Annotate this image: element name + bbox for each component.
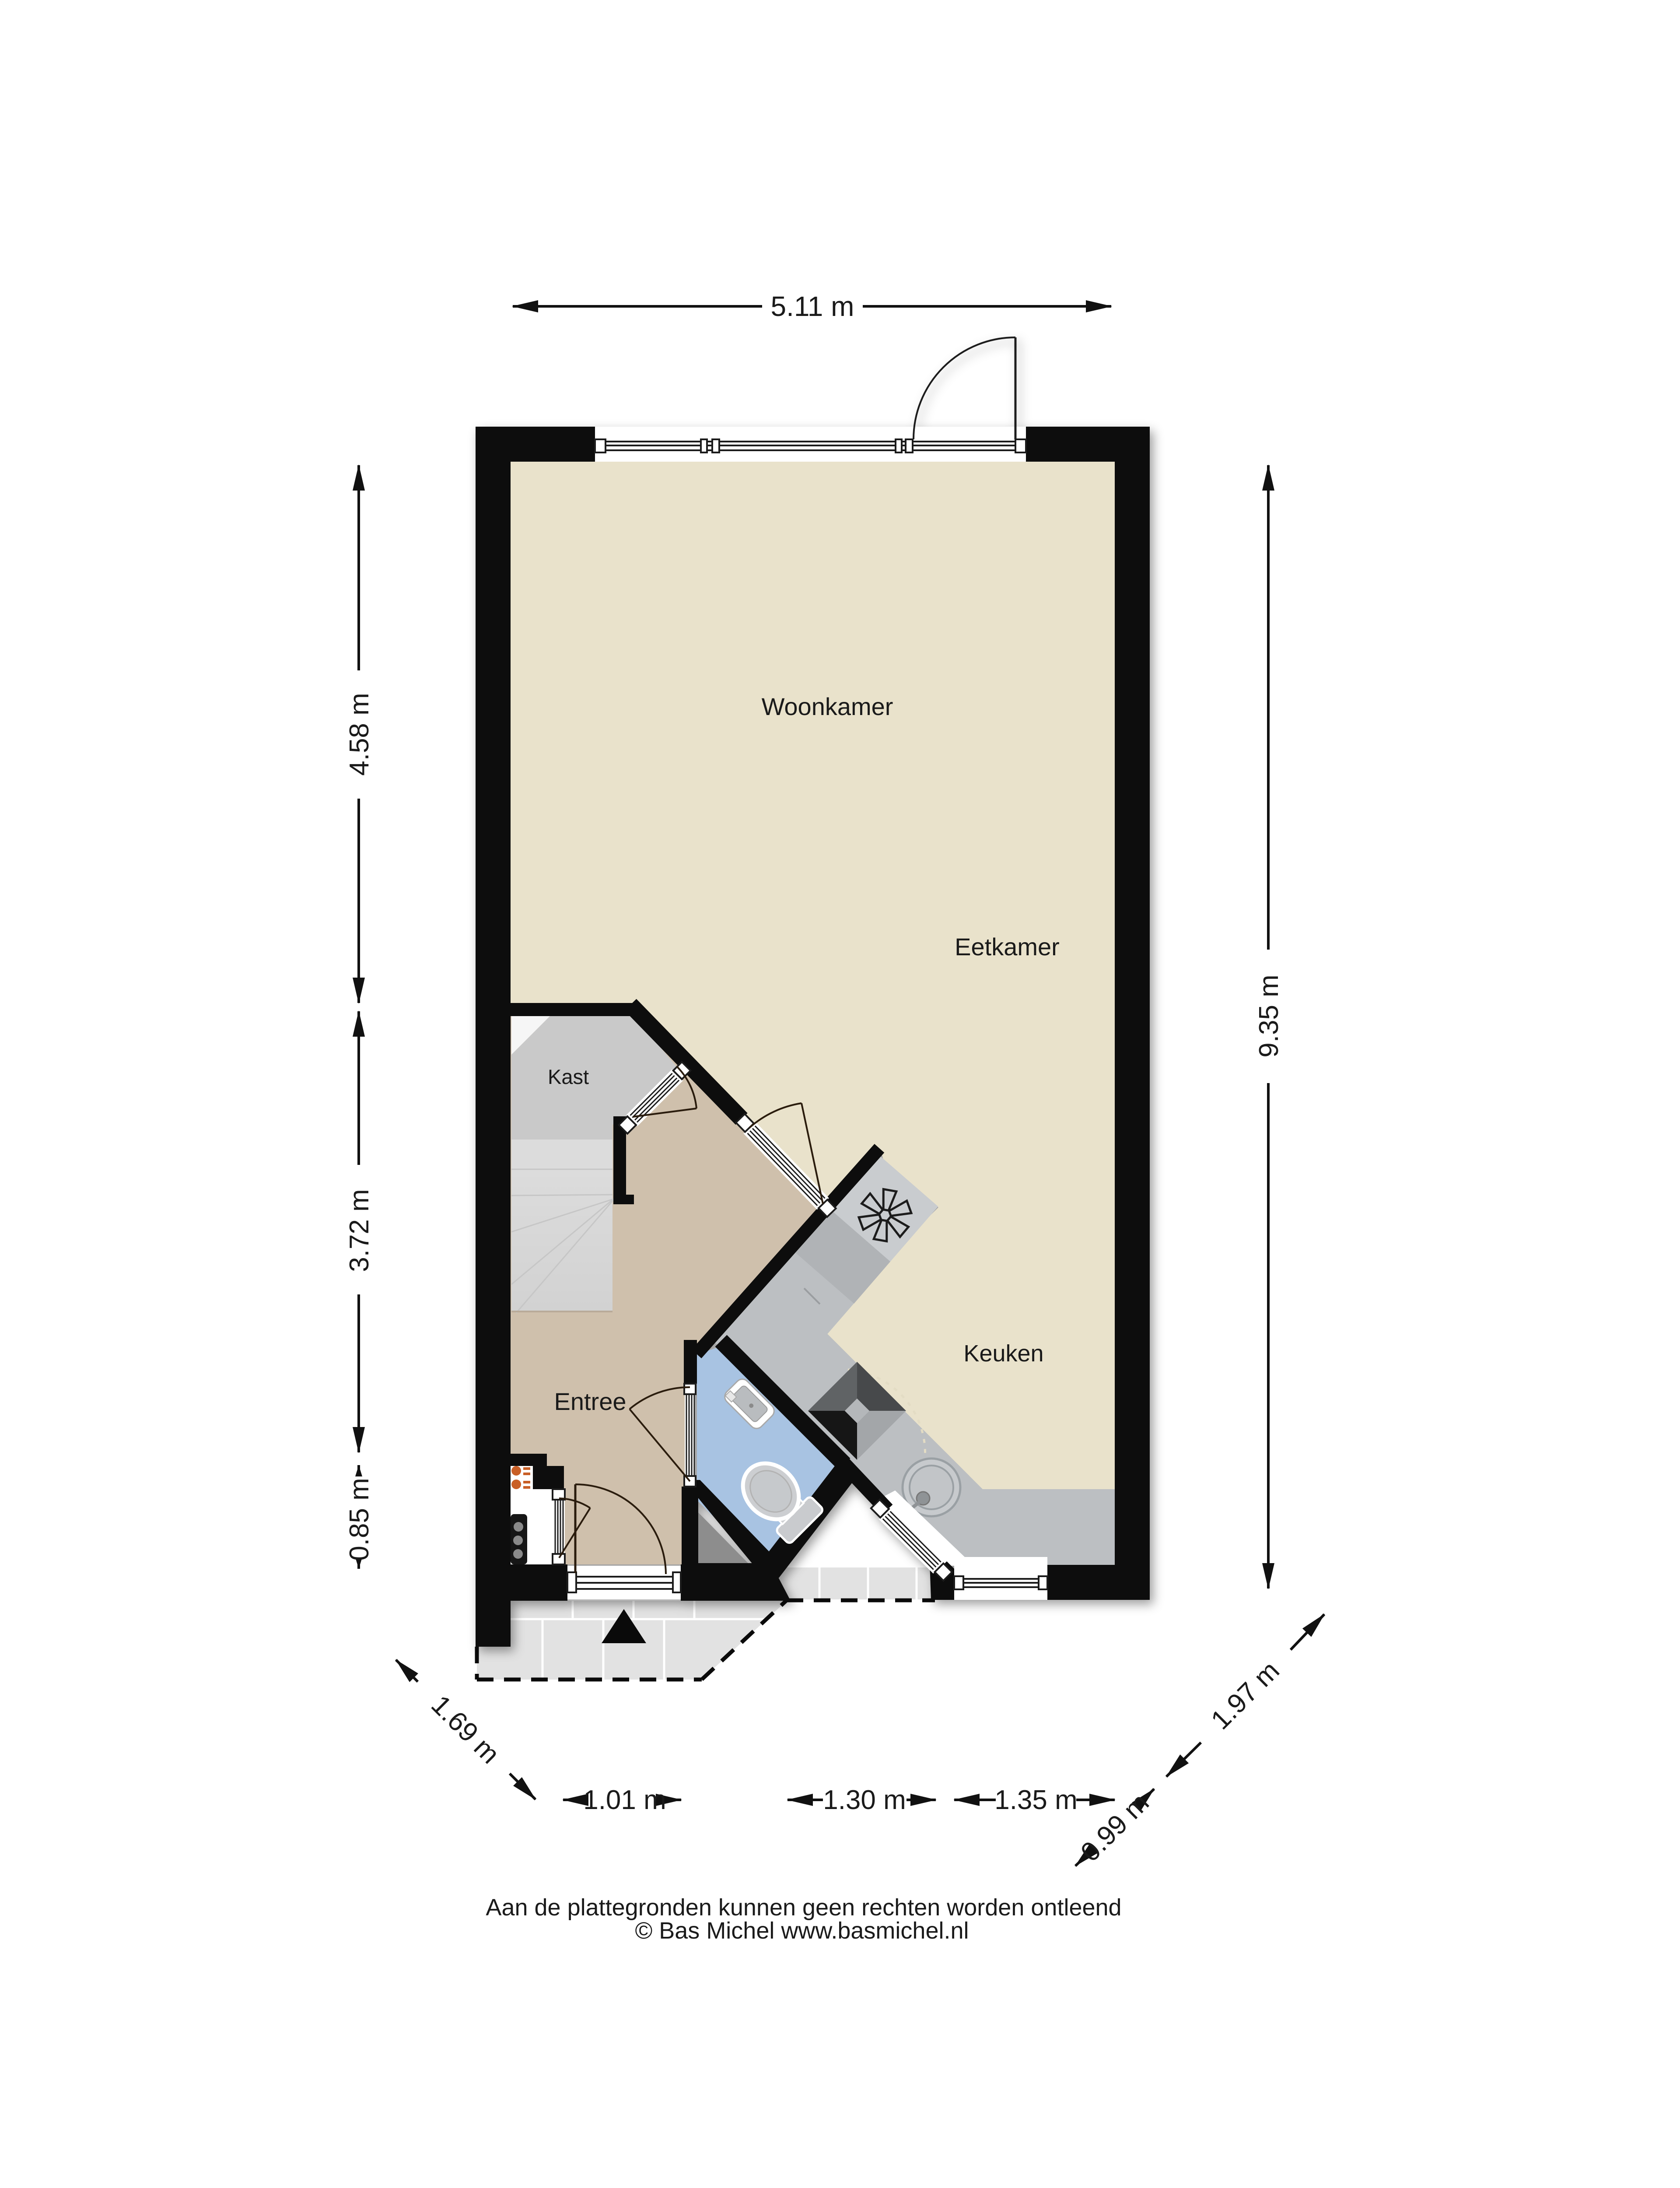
svg-text:Kast: Kast <box>548 1065 589 1088</box>
svg-text:Keuken: Keuken <box>963 1340 1043 1367</box>
svg-text:4.58 m: 4.58 m <box>344 693 374 776</box>
svg-text:1.35 m: 1.35 m <box>994 1785 1078 1815</box>
svg-text:Eetkamer: Eetkamer <box>955 933 1060 961</box>
svg-text:0.85 m: 0.85 m <box>344 1478 374 1561</box>
svg-text:Woonkamer: Woonkamer <box>762 693 893 720</box>
svg-text:5.11 m: 5.11 m <box>771 291 854 322</box>
svg-text:1.30 m: 1.30 m <box>823 1785 906 1815</box>
svg-text:© Bas Michel www.basmichel.nl: © Bas Michel www.basmichel.nl <box>635 1918 969 1944</box>
svg-text:Aan de plattegronden kunnen ge: Aan de plattegronden kunnen geen rechten… <box>486 1894 1121 1921</box>
svg-text:1.01 m: 1.01 m <box>583 1785 666 1815</box>
svg-text:3.72 m: 3.72 m <box>344 1189 374 1272</box>
svg-text:9.35 m: 9.35 m <box>1254 975 1284 1058</box>
svg-text:Entree: Entree <box>554 1388 626 1415</box>
